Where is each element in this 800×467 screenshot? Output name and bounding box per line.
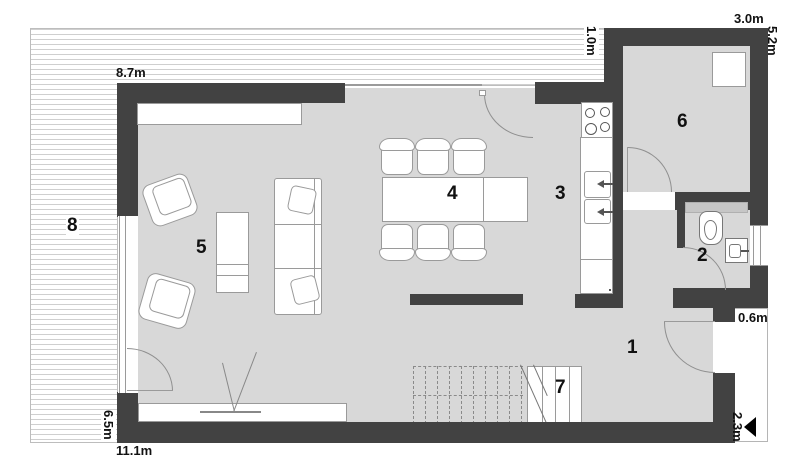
armchair-cushion <box>148 277 192 320</box>
stair-tread <box>449 366 450 424</box>
dim-top-right-width: 3.0m <box>734 12 764 25</box>
room-label-5: 5 <box>196 238 207 257</box>
washbasin-icon <box>725 238 748 263</box>
burner-icon <box>585 108 595 118</box>
dim-right-height: 5.2m <box>766 26 779 56</box>
stair-tread <box>569 367 570 424</box>
table-divider <box>217 264 248 265</box>
dim-entry-height: 2.3m <box>731 412 744 442</box>
table-extension-line <box>483 178 484 221</box>
wall-bath-left <box>677 210 685 248</box>
terrace-top <box>117 28 605 86</box>
stair-tread <box>509 366 510 424</box>
dining-chair <box>381 142 413 175</box>
room-label-8: 8 <box>66 216 79 235</box>
wall-bottom <box>117 422 735 443</box>
stair-tread <box>473 366 474 424</box>
wall-bath-bottom <box>673 288 768 308</box>
stair-tread <box>437 366 438 424</box>
wall-kitchen-stub <box>575 294 623 308</box>
room-label-4: 4 <box>447 184 458 203</box>
glazing-line <box>125 216 126 393</box>
room-label-7: 7 <box>555 378 566 397</box>
floor-plan: 1 2 3 4 5 6 7 8 8.7m 1.0m 3.0m 5.2m 0.6m… <box>0 0 800 467</box>
wardrobe <box>712 52 746 87</box>
dining-chair <box>417 224 449 257</box>
burner-icon <box>600 107 610 117</box>
stair-tread <box>521 366 522 424</box>
sofa-pillow <box>287 185 318 216</box>
wall-left-lower <box>117 392 138 423</box>
burner-icon <box>600 122 610 132</box>
stairs-dashed-mid-line <box>413 395 523 396</box>
faucet-icon <box>599 211 613 213</box>
window-top-glazing <box>345 84 482 86</box>
dim-bottom-width: 11.1m <box>116 444 152 457</box>
counter-dot <box>609 289 611 291</box>
tv-base <box>200 411 261 413</box>
glazing-line <box>760 226 761 265</box>
door-leaf-terrace <box>127 390 173 391</box>
stair-tread <box>497 366 498 424</box>
stair-tread <box>413 366 414 424</box>
table-divider <box>217 275 248 276</box>
dim-kitchen-strip: 1.0m <box>584 26 599 56</box>
room-label-1: 1 <box>627 338 638 357</box>
dim-entry-width: 0.6m <box>738 311 768 324</box>
stair-tread <box>485 366 486 424</box>
room-label-6: 6 <box>677 112 688 131</box>
wall-top-left <box>117 83 345 103</box>
door-opening-entry <box>713 322 735 373</box>
window-bath-right <box>750 225 768 266</box>
door-opening-room6 <box>623 192 675 210</box>
stair-tread <box>425 366 426 424</box>
armchair-cushion <box>151 176 194 217</box>
dining-chair <box>453 142 485 175</box>
stove-icon <box>581 102 613 138</box>
room-label-3: 3 <box>555 184 566 203</box>
door-leaf-room6 <box>627 147 628 192</box>
wall-left-upper <box>117 83 138 217</box>
coffee-table <box>216 212 249 293</box>
faucet-icon <box>599 183 613 185</box>
wall-kitchen-right <box>613 100 623 308</box>
sideboard-top <box>137 103 302 125</box>
toilet-bowl <box>704 220 717 240</box>
door-hinge <box>479 90 486 96</box>
wall-entry-upper <box>713 306 735 322</box>
dim-left-height: 6.5m <box>101 410 116 440</box>
dining-chair <box>417 142 449 175</box>
stairs-dashed-top-edge <box>413 366 523 367</box>
wall-top-right <box>604 28 768 46</box>
dim-top-left: 8.7m <box>116 66 146 79</box>
wall-room-divider <box>410 294 523 305</box>
glazing-line <box>753 226 754 265</box>
counter-divider <box>581 259 612 260</box>
door-leaf-entry <box>664 321 715 322</box>
dining-chair <box>453 224 485 257</box>
basin <box>729 244 741 258</box>
toilet-icon <box>699 211 723 245</box>
burner-icon <box>585 123 597 135</box>
dining-chair <box>381 224 413 257</box>
room-label-2: 2 <box>697 246 708 265</box>
glazing-line <box>119 216 120 393</box>
tap <box>741 250 749 252</box>
entry-direction-arrow-icon <box>744 417 756 437</box>
stair-tread <box>461 366 462 424</box>
